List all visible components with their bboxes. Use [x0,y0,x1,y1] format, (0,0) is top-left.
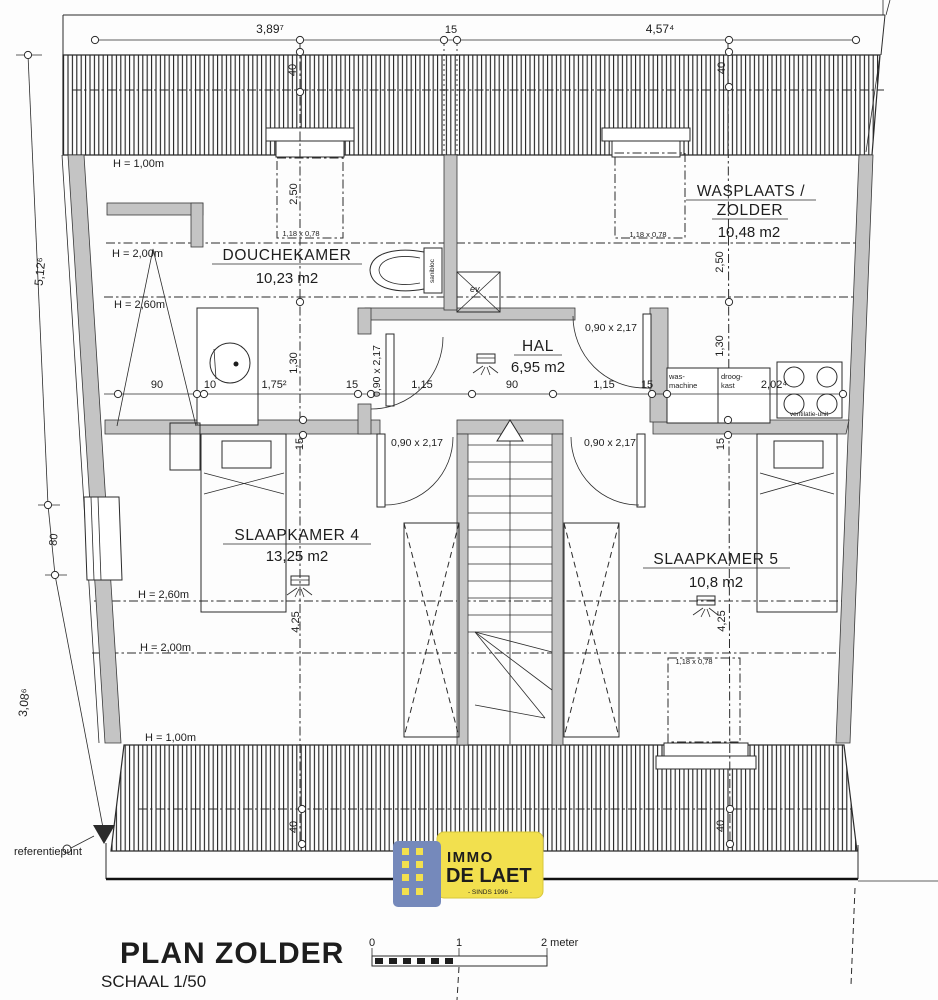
skylight-body-bottom [664,743,748,756]
dim-col-right-15: 15 [715,438,727,450]
dim-col-right-130: 1,30 [714,335,726,356]
room-area-slaapkamer4: 13,25 m2 [266,548,329,565]
ceiling-lamp-hal [473,354,498,375]
washbasin [197,308,258,425]
skylight-frame-left [266,128,354,141]
label-droogkast-2: kast [721,381,736,390]
room-name-douchekamer: DOUCHEKAMER [223,247,352,264]
roof-window-projections [277,153,740,742]
label-droogkast-1: droog- [721,372,743,381]
window-size-top-left: 1,18 x 0,78 [282,229,319,238]
attic-ladder-triangle [117,249,196,426]
staircase [404,420,619,744]
dim-col-left-425: 4,25 [290,611,302,632]
room-area-wasplaats: 10,48 m2 [718,224,781,241]
dim-row-202: 2,02⁴ [761,379,787,391]
logo-text-delaet: DE LAET [446,865,532,887]
dim-left-upper: 5,12⁶ [32,257,49,287]
floor-plan-page: 3,89⁷ 15 4,57⁴ 40 40 40 40 5,12⁶ 80 3,08… [0,0,938,1000]
height-reference-lines [72,44,884,848]
doors [371,314,651,507]
dim-row-15a: 15 [346,379,358,391]
room-area-hal: 6,95 m2 [511,359,565,376]
dim-eave-bottom-right: 40 [715,820,727,832]
floor-plan-drawing: 3,89⁷ 15 4,57⁴ 40 40 40 40 5,12⁶ 80 3,08… [0,0,938,1000]
dim-col-left-130: 1,30 [288,352,300,373]
height-100-top: H = 1,00m [113,158,164,170]
roof-hatch-top [63,55,880,157]
wall-hal-left-upper [358,308,371,334]
stair-wall-right [552,434,563,745]
height-260-bottom: H = 2,60m [138,589,189,601]
height-260-top: H = 2,60m [114,299,165,311]
room-area-slaapkamer5: 10,8 m2 [689,574,743,591]
label-wasmachine-1: was- [668,372,685,381]
dim-col-left-15: 15 [294,438,306,450]
label-wasmachine-2: machine [669,381,697,390]
dim-left-lower: 3,08⁶ [16,688,33,718]
scale-bar-2: 2 meter [541,937,579,949]
door-size-wasplaats: 0,90 x 2,17 [585,322,637,334]
dim-eave-top-left: 40 [287,64,299,76]
dim-top-left: 3,89⁷ [256,22,284,36]
top-outline [63,0,890,55]
dim-row-175: 1,75² [261,379,286,391]
door-size-douchekamer: 0,90 x 2,17 [371,345,383,397]
plan-scale: SCHAAL 1/50 [101,972,206,991]
window-size-bottom: 1,18 x 0,78 [675,657,712,666]
window-size-top-right: 1,18 x 0,78 [629,230,666,239]
room-name-wasplaats-1: WASPLAATS / [697,183,805,200]
closet-wall-top [107,203,203,215]
height-200-bottom: H = 2,00m [140,642,191,654]
label-ev: ev [470,284,480,294]
dim-eave-top-right: 40 [716,62,728,74]
wall-hal-right [650,308,668,422]
scale-bar-0: 0 [369,937,375,949]
dim-left-mid: 80 [47,533,60,546]
wall-hal-top [365,308,575,320]
dim-row-10: 10 [204,379,216,391]
skylight-frame-right [602,128,690,141]
logo-immo-de-laet: IMMO DE LAET - SINDS 1996 - [393,832,543,907]
sloped-ceiling-zone-left [404,523,459,737]
door-size-slaapkamer4: 0,90 x 2,17 [391,437,443,449]
sloped-ceiling-zone-right [564,523,619,737]
dim-col-left-250: 2,50 [288,183,300,204]
dim-row-115b: 1,15 [593,379,614,391]
bed-slaapkamer5 [757,434,837,612]
dim-row-90b: 90 [506,379,518,391]
dim-top-right: 4,57⁴ [646,22,675,36]
dim-top-mid: 15 [445,24,457,36]
height-100-bottom: H = 1,00m [145,732,196,744]
logo-text-immo: IMMO [447,849,494,866]
wall-douche-wasplaats [444,155,457,310]
dim-col-right-425: 4,25 [716,610,728,631]
skylight-body-right [612,141,680,157]
dim-row-15b: 15 [641,379,653,391]
label-referentiepunt: referentiepunt [14,846,82,858]
room-name-wasplaats-2: ZOLDER [717,202,783,219]
skylight-body-left [276,141,344,157]
dim-row-90a: 90 [151,379,163,391]
plan-title: PLAN ZOLDER [120,937,344,970]
dim-eave-bottom-left: 40 [288,821,300,833]
left-wall-window [84,497,122,580]
scale-bar-1: 1 [456,937,462,949]
door-size-slaapkamer5: 0,90 x 2,17 [584,437,636,449]
room-name-hal: HAL [522,338,554,355]
label-ventilatie: ventilatie-unit [790,411,828,418]
height-200-top: H = 2,00m [112,248,163,260]
dim-row-115a: 1,15 [411,379,432,391]
bed-slaapkamer4 [170,423,286,612]
room-area-douchekamer: 10,23 m2 [256,270,319,287]
skylight-frame-bottom [656,756,756,769]
closet-wall-right [191,203,203,247]
label-sanibloc: sanibloc [429,258,436,283]
ceiling-lamp-slaapkamer5 [693,596,718,617]
room-name-slaapkamer4: SLAAPKAMER 4 [234,527,359,544]
wall-hal-left-lower [358,404,371,434]
scale-bar: 0 1 2 meter [369,937,579,966]
logo-text-sinds: - SINDS 1996 - [468,889,512,896]
room-name-slaapkamer5: SLAAPKAMER 5 [653,551,778,568]
dim-col-right-250: 2,50 [714,251,726,272]
